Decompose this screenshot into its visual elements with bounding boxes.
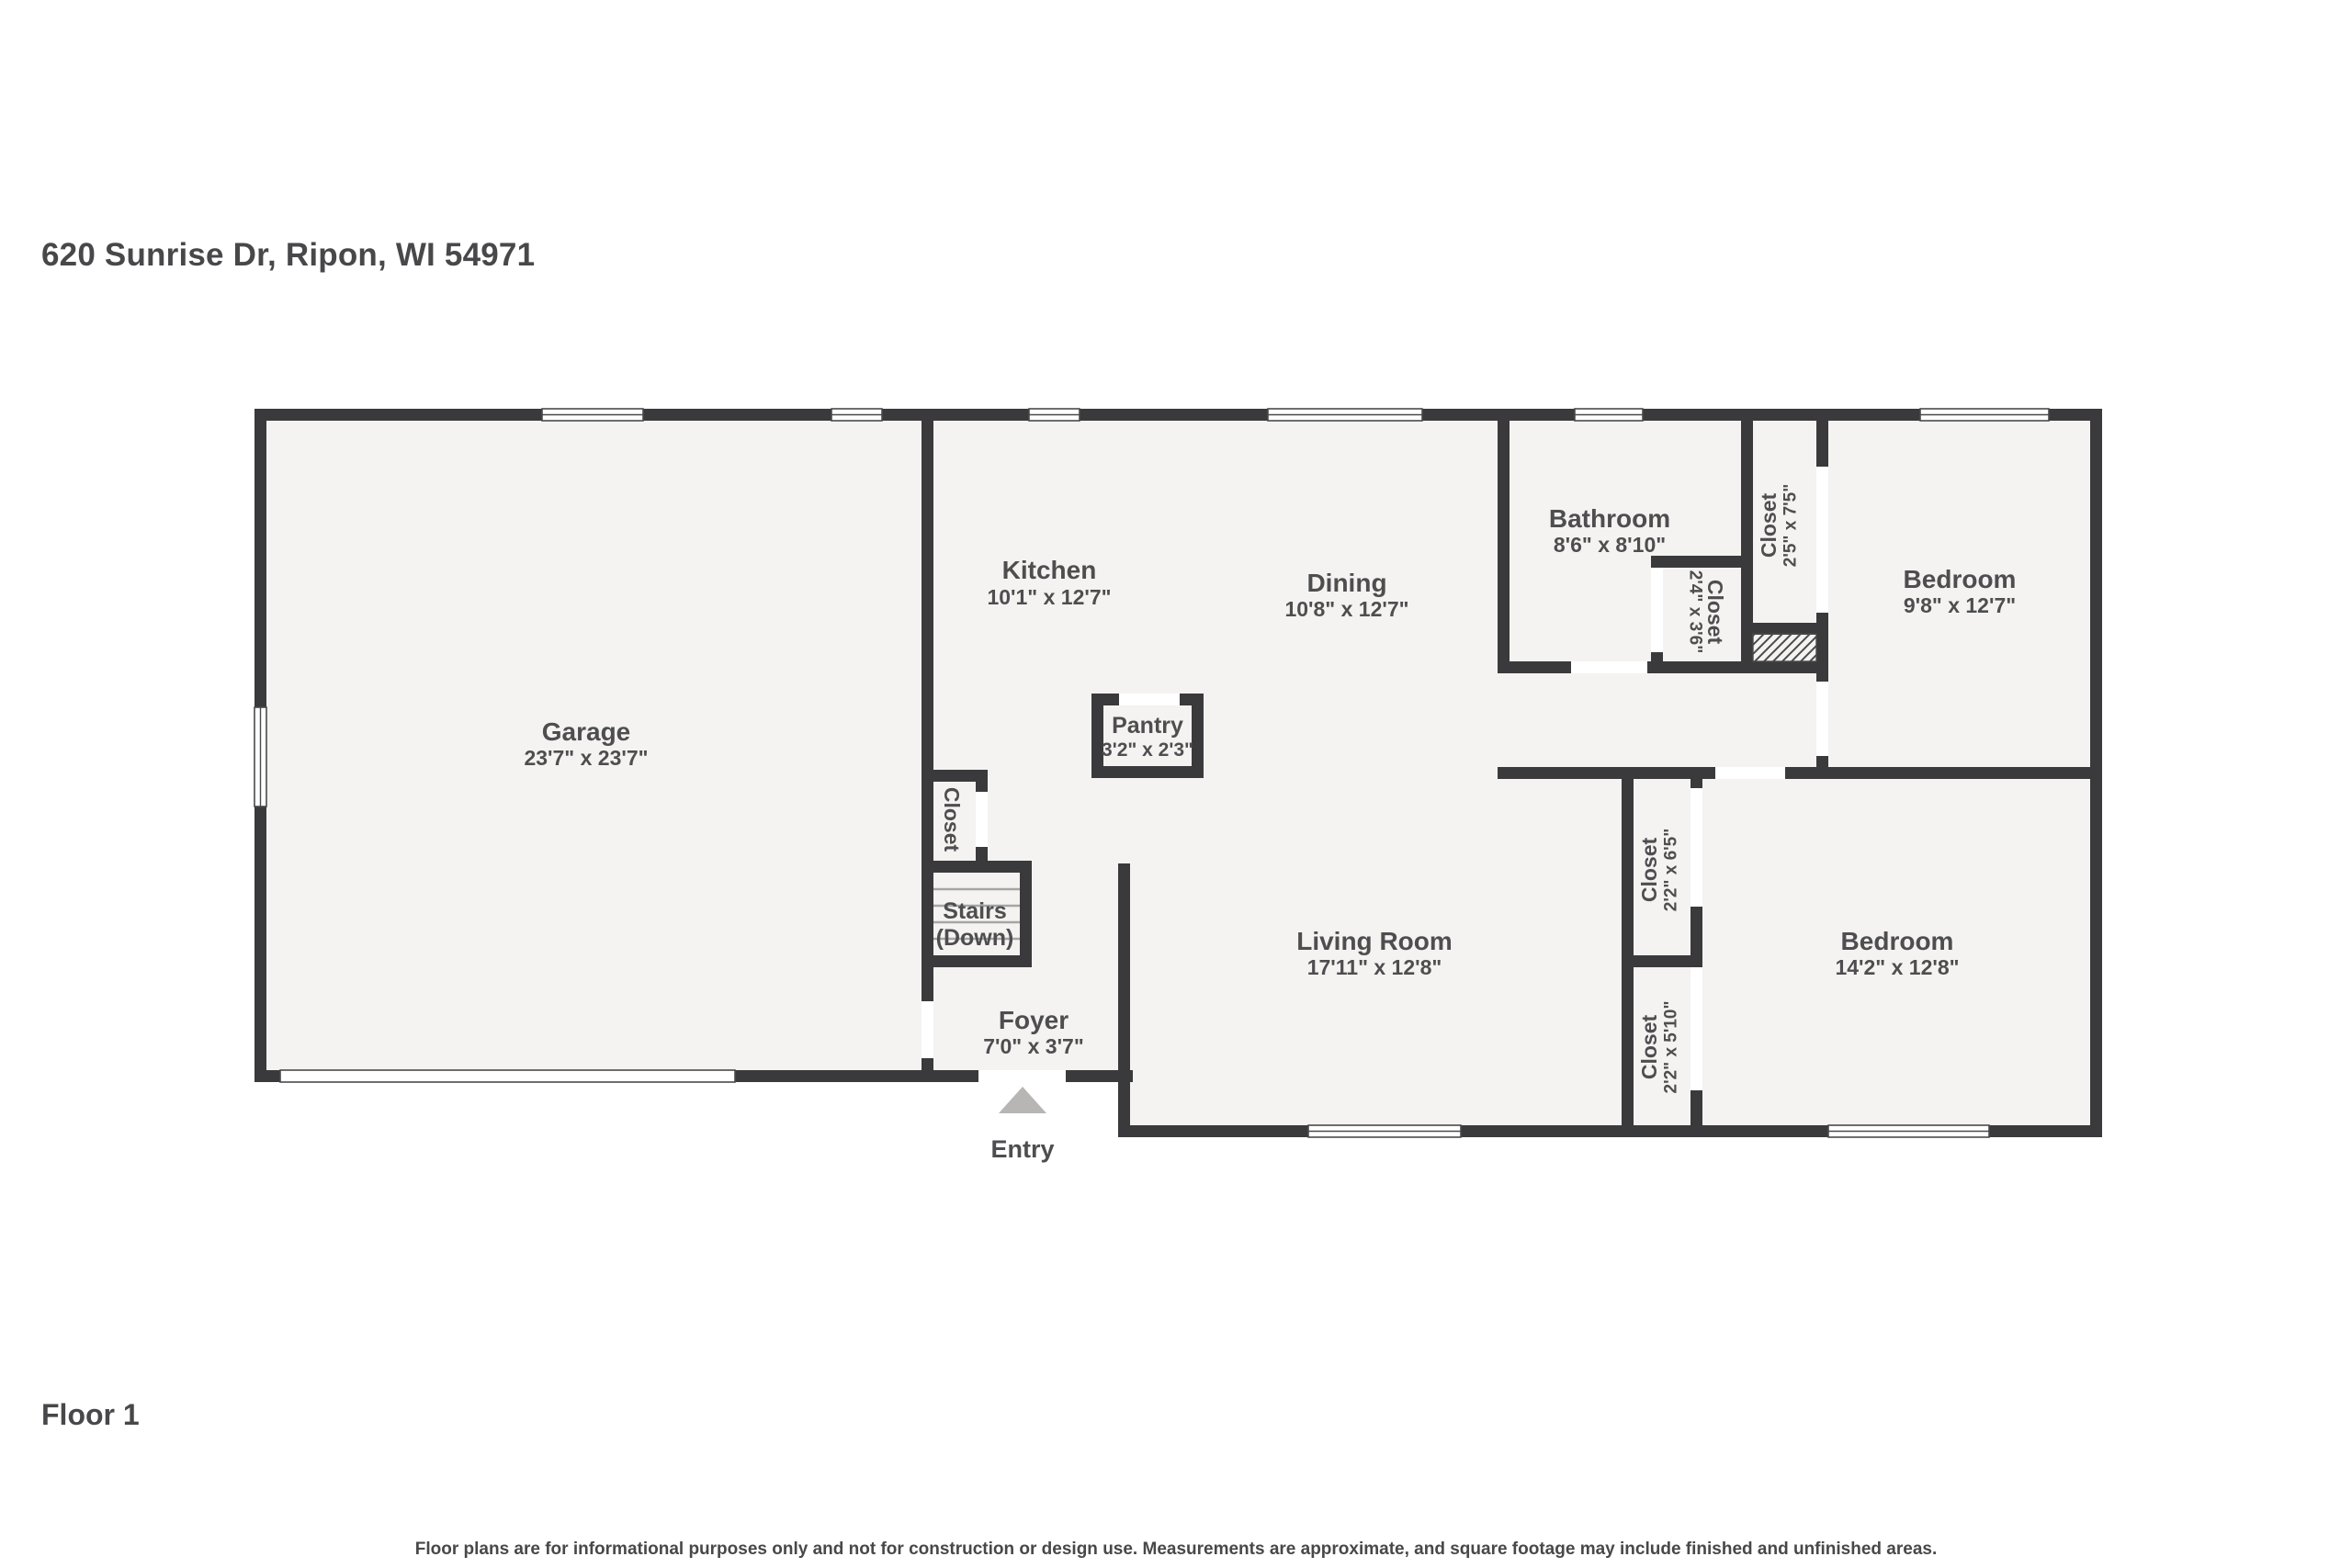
entry-marker: Entry — [990, 1135, 1054, 1163]
room-dims: 2'2" x 6'5" — [1662, 829, 1681, 911]
floor-label: Floor 1 — [41, 1398, 140, 1432]
room-living: Living Room 17'11" x 12'8" — [1296, 927, 1453, 979]
room-dims: 17'11" x 12'8" — [1307, 955, 1442, 979]
room-label: Kitchen — [1002, 556, 1097, 584]
room-dims: 9'8" x 12'7" — [1904, 593, 2016, 617]
room-dims: 2'4" x 3'6" — [1686, 570, 1705, 653]
room-label: Foyer — [999, 1006, 1069, 1034]
room-label: Stairs — [943, 898, 1006, 924]
room-dims: 23'7" x 23'7" — [524, 746, 648, 770]
room-label: Dining — [1306, 569, 1386, 597]
room-label: Closet — [1703, 580, 1727, 645]
room-garage: Garage 23'7" x 23'7" — [524, 717, 648, 770]
entry-arrow-icon — [999, 1087, 1046, 1113]
room-dims: 3'2" x 2'3" — [1102, 739, 1193, 761]
room-label: Closet — [940, 787, 964, 852]
hatched-area — [1753, 634, 1816, 661]
room-label: Living Room — [1296, 927, 1453, 955]
room-bath-closet: Closet 2'4" x 3'6" — [1686, 570, 1728, 653]
room-sublabel: (Down) — [936, 925, 1014, 951]
room-label: Garage — [542, 717, 631, 746]
room-stairs: Stairs (Down) — [936, 898, 1014, 951]
room-dims: 10'1" x 12'7" — [987, 585, 1111, 609]
room-closet-upper: Closet 2'2" x 6'5" — [1637, 829, 1681, 911]
floor-plan: Garage 23'7" x 23'7" Kitchen 10'1" x 12'… — [0, 0, 2352, 1568]
room-pantry: Pantry 3'2" x 2'3" — [1102, 713, 1193, 761]
room-hall-closet: Closet 2'5" x 7'5" — [1757, 484, 1801, 567]
disclaimer-text: Floor plans are for informational purpos… — [0, 1540, 2352, 1560]
room-dims: 10'8" x 12'7" — [1284, 597, 1408, 621]
entry-label: Entry — [990, 1135, 1054, 1163]
garage-door — [280, 1070, 735, 1082]
room-label: Pantry — [1112, 713, 1183, 739]
room-label: Bedroom — [1841, 927, 1954, 955]
room-dims: 8'6" x 8'10" — [1554, 533, 1666, 557]
room-label: Closet — [1757, 493, 1781, 558]
room-dims: 2'5" x 7'5" — [1781, 484, 1801, 567]
room-label: Bathroom — [1549, 504, 1670, 533]
room-label: Closet — [1637, 1015, 1661, 1080]
room-bedroom-top: Bedroom 9'8" x 12'7" — [1904, 565, 2017, 617]
room-kitchen: Kitchen 10'1" x 12'7" — [987, 556, 1111, 609]
room-bedroom-bottom: Bedroom 14'2" x 12'8" — [1835, 927, 1959, 979]
room-label: Closet — [1637, 838, 1661, 903]
room-stairs-closet: Closet — [940, 787, 964, 852]
room-dims: 7'0" x 3'7" — [983, 1034, 1084, 1058]
room-bathroom: Bathroom 8'6" x 8'10" — [1549, 504, 1670, 557]
room-dims: 14'2" x 12'8" — [1835, 955, 1959, 979]
room-label: Bedroom — [1904, 565, 2017, 593]
room-dims: 2'2" x 5'10" — [1662, 1000, 1681, 1093]
